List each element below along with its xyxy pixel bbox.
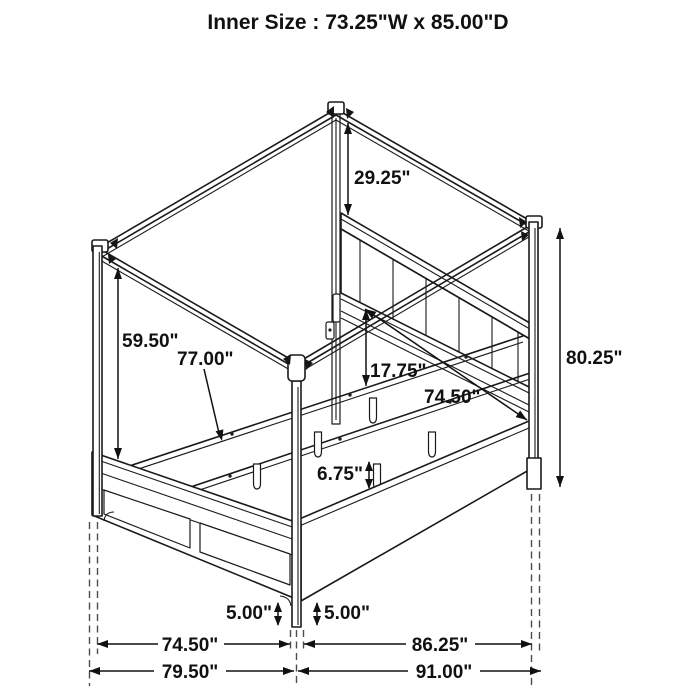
dim-label: 59.50" [122, 331, 179, 352]
front-left-post [93, 246, 102, 516]
bed-diagram-canvas: Inner Size : 73.25"W x 85.00"D [0, 0, 700, 700]
page-title: Inner Size : 73.25"W x 85.00"D [207, 11, 508, 34]
canopy-bed-dimension-diagram: Inner Size : 73.25"W x 85.00"D [0, 0, 700, 700]
dim-side-rail-depth: 86.25" [304, 635, 532, 656]
dim-slat-length: 77.00" [177, 349, 234, 441]
dim-label: 6.75" [317, 464, 363, 485]
dim-overall-width: 79.50" [89, 662, 294, 683]
dim-label: 79.50" [162, 662, 219, 683]
dim-label: 17.75" [370, 361, 427, 382]
bracket-foot-notch [280, 596, 291, 606]
dim-label: 86.25" [412, 635, 469, 656]
dim-foot-clearance-right: 5.00" [313, 602, 370, 626]
dim-overall-depth: 91.00" [298, 662, 541, 683]
dim-label: 5.00" [324, 603, 370, 624]
dim-label: 77.00" [177, 349, 234, 370]
footboard [92, 452, 301, 606]
dim-slat-leg-height: 6.75" [317, 461, 373, 489]
dim-label: 74.50" [162, 635, 219, 656]
dim-footboard-width: 74.50" [97, 635, 290, 656]
dim-post-clearance-height: 59.50" [114, 268, 179, 459]
dim-label: 74.50" [424, 387, 481, 408]
back-right-post [527, 222, 541, 489]
dim-foot-clearance-left: 5.00" [226, 602, 282, 626]
dim-label: 80.25" [566, 348, 623, 369]
dim-label: 29.25" [354, 168, 411, 189]
dim-label: 5.00" [226, 603, 272, 624]
dim-canopy-to-headboard: 29.25" [344, 123, 411, 215]
back-left-post [332, 114, 340, 424]
dim-overall-height: 80.25" [556, 228, 623, 487]
dim-label: 91.00" [416, 662, 473, 683]
